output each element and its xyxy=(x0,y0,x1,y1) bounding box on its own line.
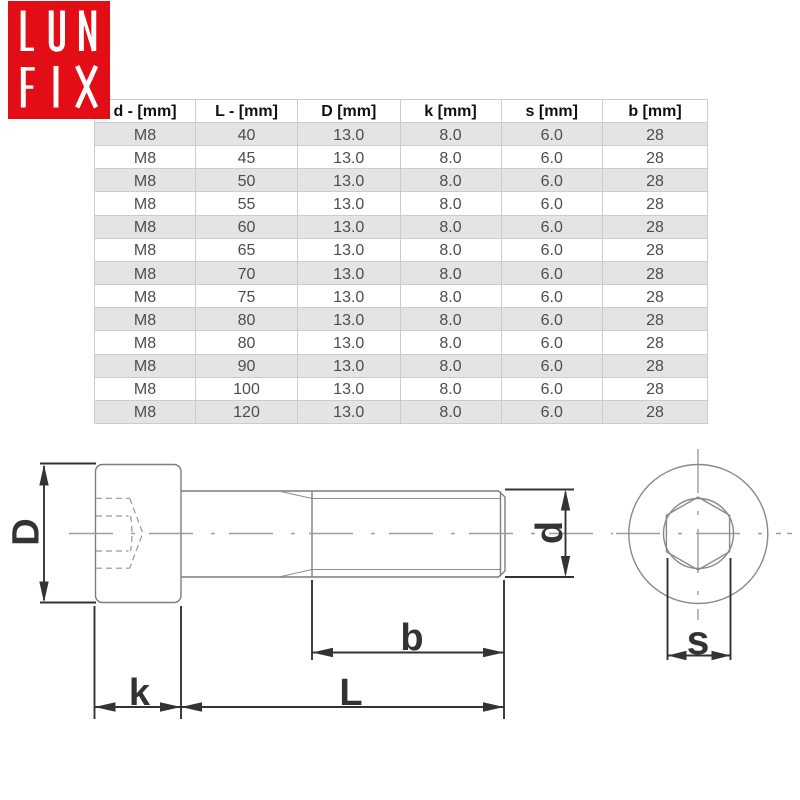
svg-text:d: d xyxy=(529,521,571,544)
svg-text:D: D xyxy=(6,518,48,545)
svg-text:s: s xyxy=(687,617,710,663)
svg-text:k: k xyxy=(129,672,151,714)
svg-text:L: L xyxy=(339,672,362,714)
svg-text:b: b xyxy=(400,617,423,659)
